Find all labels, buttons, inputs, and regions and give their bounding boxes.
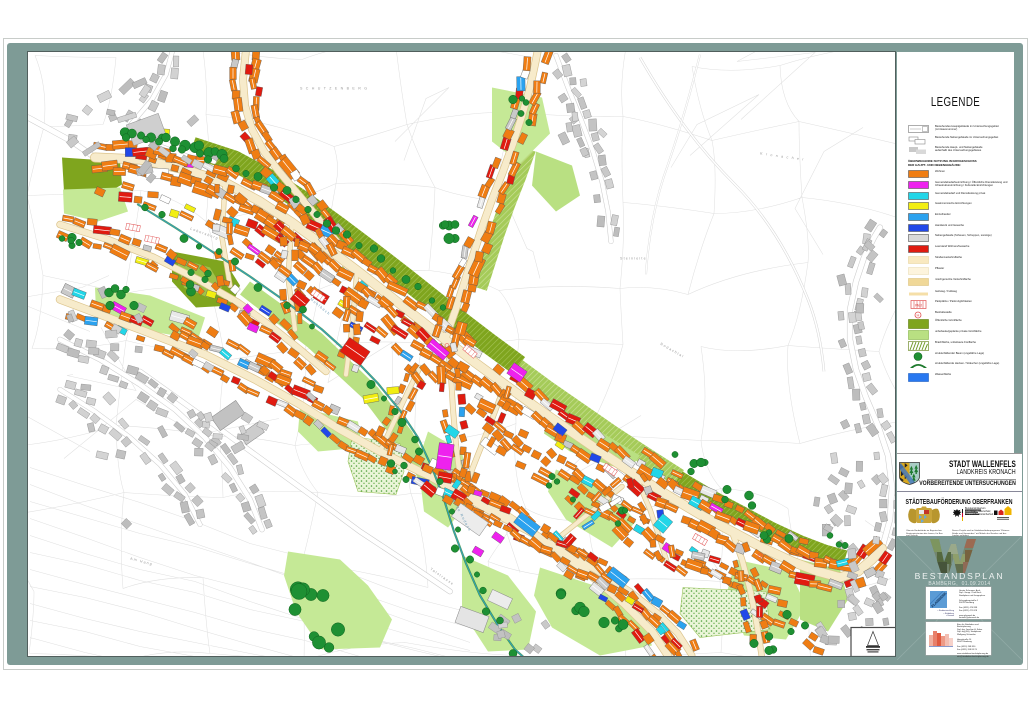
svg-text:H: H (917, 312, 920, 317)
svg-text:Steinleite: Steinleite (620, 257, 647, 261)
svg-text:Pkst: Pkst (915, 303, 922, 307)
svg-text:S C H U T Z E N B E R G: S C H U T Z E N B E R G (300, 87, 368, 91)
